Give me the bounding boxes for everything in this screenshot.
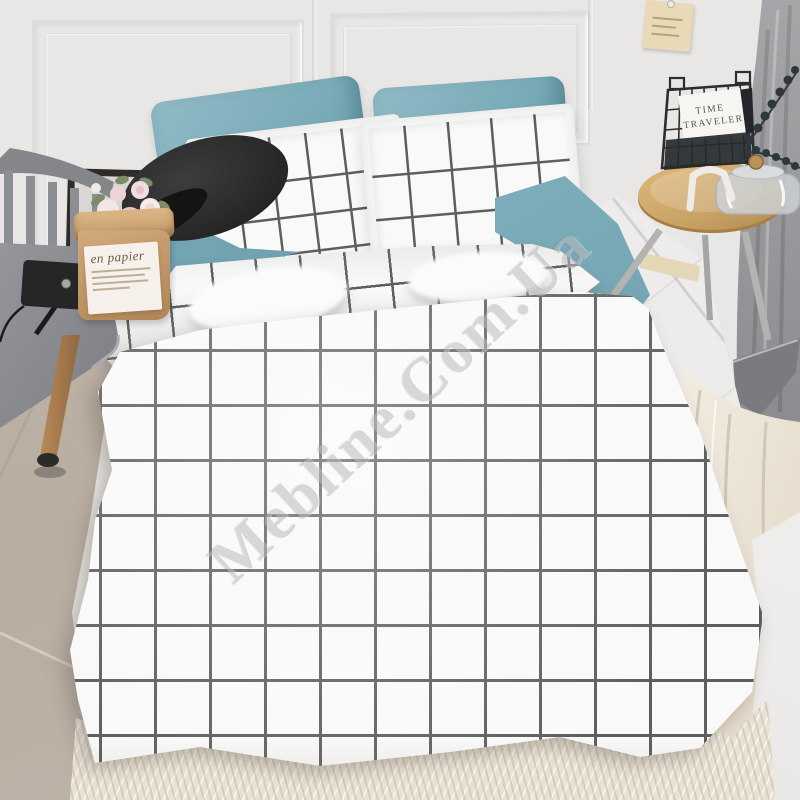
bag-label: en papier <box>84 242 163 315</box>
bag-label-line <box>93 287 130 292</box>
lamp-switch <box>61 279 71 289</box>
bag-label-line <box>92 273 145 279</box>
paper-bag: en papier <box>74 204 174 322</box>
chair-spindle <box>48 182 57 248</box>
bag-label-line <box>92 279 148 285</box>
leg-shadow <box>34 466 66 478</box>
bag-label-title: en papier <box>90 247 153 267</box>
chair-spindle <box>4 170 13 248</box>
bedroom-photo: TIME TRAVELER <box>0 0 800 800</box>
bag-label-line <box>91 267 150 273</box>
chair-spindle <box>26 176 35 248</box>
chair-leg-tip <box>37 453 59 467</box>
